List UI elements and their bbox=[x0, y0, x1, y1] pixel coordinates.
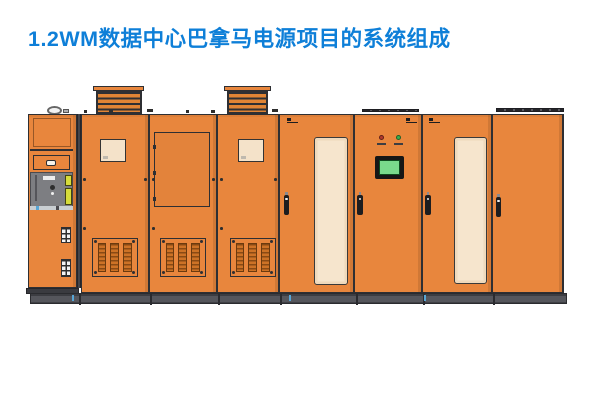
inspection-window bbox=[238, 139, 264, 162]
tall-door-panel bbox=[454, 137, 487, 284]
door-handle bbox=[496, 194, 502, 218]
cabinet-5 bbox=[279, 114, 354, 293]
hmi-screen-frame bbox=[375, 156, 404, 179]
breaker-compartment bbox=[30, 172, 73, 207]
hmi-screen bbox=[379, 160, 400, 175]
door-handle bbox=[357, 192, 363, 216]
plinth-joint bbox=[356, 294, 358, 305]
roof-fitting bbox=[63, 109, 69, 113]
access-panel bbox=[154, 132, 210, 207]
louver-slat bbox=[178, 243, 187, 272]
brand-mark bbox=[429, 118, 440, 123]
ventilation-grille bbox=[160, 238, 206, 277]
breaker-knob bbox=[50, 185, 55, 190]
page-title: 1.2WM数据中心巴拿马电源项目的系统组成 bbox=[28, 22, 568, 53]
handle-dot bbox=[427, 198, 430, 201]
louver-slat bbox=[191, 243, 200, 272]
door-screw bbox=[274, 178, 277, 181]
louver-slat bbox=[123, 243, 132, 272]
meter-slot bbox=[46, 160, 56, 166]
brand-mark bbox=[406, 118, 417, 123]
louver-slat bbox=[236, 243, 245, 272]
cabinet-3 bbox=[149, 114, 217, 293]
breaker-yellow-block bbox=[65, 188, 72, 205]
indicator-light-green bbox=[396, 135, 401, 140]
compartment-rail bbox=[35, 175, 37, 201]
divider bbox=[30, 149, 73, 151]
roof-rail bbox=[362, 109, 419, 112]
roof-bracket bbox=[211, 110, 215, 113]
door-screw bbox=[144, 178, 147, 181]
cabinet-4 bbox=[217, 114, 279, 293]
slide: 1.2WM数据中心巴拿马电源项目的系统组成 bbox=[0, 0, 600, 404]
door-handle bbox=[425, 192, 431, 216]
cabinet-8 bbox=[492, 114, 564, 293]
louver-slat bbox=[98, 243, 107, 272]
sill-mark bbox=[56, 206, 59, 210]
base-plinth bbox=[30, 293, 567, 304]
roof-vent-louvers bbox=[227, 90, 268, 114]
plinth-mark bbox=[424, 295, 426, 301]
compartment-sill bbox=[30, 206, 73, 210]
roof-bracket bbox=[147, 109, 153, 112]
nameplate bbox=[43, 176, 55, 180]
plinth-joint bbox=[280, 294, 282, 305]
door-screw bbox=[83, 227, 86, 230]
roof-bracket bbox=[84, 110, 87, 113]
handle-dot bbox=[359, 198, 362, 201]
cabinet-7 bbox=[422, 114, 492, 293]
plinth-joint bbox=[150, 294, 152, 305]
indicator-label bbox=[377, 143, 386, 146]
door-screw bbox=[212, 178, 215, 181]
sill-mark bbox=[36, 206, 39, 210]
plinth-joint bbox=[218, 294, 220, 305]
roof-bracket bbox=[272, 109, 278, 112]
door-screw bbox=[152, 227, 155, 230]
louver-slat bbox=[166, 243, 175, 272]
roof-rail bbox=[496, 108, 564, 112]
ventilation-grille bbox=[92, 238, 138, 277]
indicator-light-red bbox=[379, 135, 384, 140]
roof-vent-louvers bbox=[96, 90, 142, 114]
mini-vent bbox=[61, 227, 71, 243]
handle-dot bbox=[285, 198, 288, 201]
indicator-label bbox=[394, 143, 403, 146]
breaker-yellow-block bbox=[65, 175, 72, 186]
cabinet-1-incoming-switch bbox=[28, 114, 77, 288]
door-handle bbox=[284, 192, 290, 216]
inspection-window bbox=[100, 139, 126, 162]
top-door-panel bbox=[33, 118, 71, 147]
louver-slat bbox=[248, 243, 257, 272]
plinth-mark bbox=[72, 295, 74, 301]
meter-slot-panel bbox=[33, 155, 70, 170]
handle-dot bbox=[497, 200, 500, 203]
roof-bracket bbox=[109, 110, 113, 113]
plinth-joint bbox=[493, 294, 495, 305]
louver-slat bbox=[110, 243, 119, 272]
cabinet-6-control bbox=[354, 114, 422, 293]
door-screw bbox=[220, 227, 223, 230]
plinth-joint bbox=[79, 294, 81, 305]
ventilation-grille bbox=[230, 238, 276, 277]
plinth-mark bbox=[289, 295, 291, 301]
door-screw bbox=[83, 178, 86, 181]
cabinet-2 bbox=[81, 114, 149, 293]
indicator-dot bbox=[51, 192, 54, 195]
door-screw bbox=[152, 178, 155, 181]
tall-door-panel bbox=[314, 137, 348, 285]
roof-bracket bbox=[186, 110, 189, 113]
brand-mark bbox=[287, 118, 298, 123]
door-screw bbox=[220, 178, 223, 181]
louver-slat bbox=[261, 243, 270, 272]
mini-vent bbox=[61, 259, 71, 277]
